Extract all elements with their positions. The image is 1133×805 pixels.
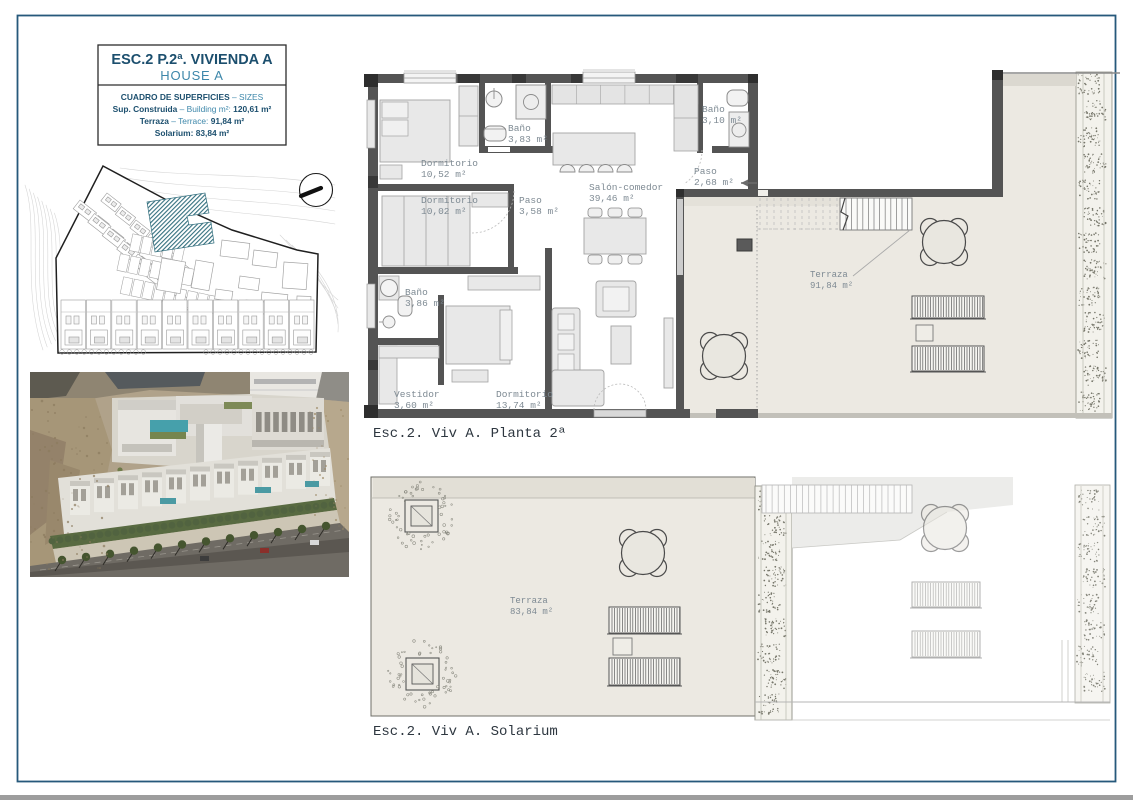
svg-text:Dormitorio: Dormitorio — [421, 158, 478, 169]
svg-text:Paso: Paso — [694, 166, 717, 177]
svg-text:Esc.2. Viv A. Solarium: Esc.2. Viv A. Solarium — [373, 724, 558, 740]
svg-text:83,84 m²: 83,84 m² — [510, 607, 553, 617]
svg-text:HOUSE A: HOUSE A — [160, 68, 223, 83]
svg-text:Dormitorio: Dormitorio — [421, 195, 478, 206]
svg-text:3,83 m²: 3,83 m² — [508, 134, 548, 145]
svg-text:3,60 m²: 3,60 m² — [394, 400, 434, 411]
svg-text:Salón-comedor: Salón-comedor — [589, 182, 663, 193]
svg-text:ESC.2 P.2ª. VIVIENDA A: ESC.2 P.2ª. VIVIENDA A — [111, 52, 273, 68]
svg-text:2,68 m²: 2,68 m² — [694, 177, 734, 188]
svg-text:91,84 m²: 91,84 m² — [810, 281, 853, 291]
svg-text:Vestidor: Vestidor — [394, 389, 440, 400]
svg-text:Terraza – Terrace: 91,84 m²: Terraza – Terrace: 91,84 m² — [140, 116, 245, 126]
svg-text:Baño: Baño — [702, 104, 725, 115]
svg-text:10,02 m²: 10,02 m² — [421, 206, 467, 217]
svg-text:3,86 m²: 3,86 m² — [405, 298, 445, 309]
svg-text:3,58 m²: 3,58 m² — [519, 206, 559, 217]
svg-text:13,74 m²: 13,74 m² — [496, 400, 542, 411]
svg-text:Baño: Baño — [405, 287, 428, 298]
svg-text:39,46 m²: 39,46 m² — [589, 193, 635, 204]
svg-text:10,52 m²: 10,52 m² — [421, 169, 467, 180]
svg-text:Esc.2. Viv A. Planta 2ª: Esc.2. Viv A. Planta 2ª — [373, 426, 566, 442]
svg-text:Baño: Baño — [508, 123, 531, 134]
svg-text:Terraza: Terraza — [510, 596, 548, 606]
svg-text:CUADRO DE SUPERFICIES – SIZES: CUADRO DE SUPERFICIES – SIZES — [121, 92, 264, 102]
svg-text:Sup. Construida – Building m²:: Sup. Construida – Building m²: 120,61 m² — [113, 104, 272, 114]
svg-text:Solarium: 83,84 m²: Solarium: 83,84 m² — [155, 128, 230, 138]
svg-text:Dormitorio: Dormitorio — [496, 389, 553, 400]
svg-text:Terraza: Terraza — [810, 270, 848, 280]
svg-text:Paso: Paso — [519, 195, 542, 206]
svg-text:3,10 m²: 3,10 m² — [702, 115, 742, 126]
